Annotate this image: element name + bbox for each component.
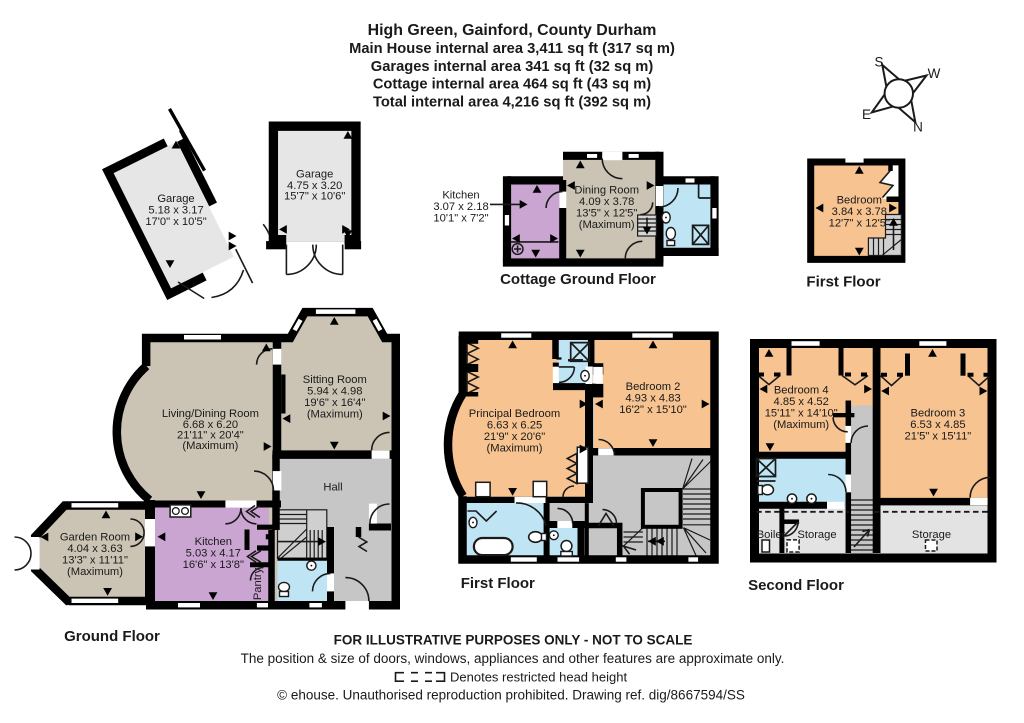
svg-text:5.03 x 4.17: 5.03 x 4.17 [186, 548, 241, 560]
svg-text:Main House internal area 3,411: Main House internal area 3,411 sq ft (31… [349, 41, 675, 57]
svg-text:Garages internal area 341 sq f: Garages internal area 341 sq ft (32 sq m… [371, 59, 654, 75]
svg-text:Pantry: Pantry [252, 567, 264, 600]
svg-text:12'7" x 12'5": 12'7" x 12'5" [829, 218, 890, 230]
svg-text:Bedroom 3: Bedroom 3 [911, 408, 966, 420]
svg-text:16'6" x 13'8": 16'6" x 13'8" [183, 559, 244, 571]
svg-text:15'7" x 10'6": 15'7" x 10'6" [284, 191, 345, 203]
svg-text:Kitchen: Kitchen [442, 190, 479, 202]
svg-text:First Floor: First Floor [461, 575, 535, 592]
svg-text:Garage: Garage [157, 193, 194, 205]
svg-text:Ground Floor: Ground Floor [64, 628, 160, 645]
svg-text:5.18 x 3.17: 5.18 x 3.17 [148, 205, 203, 217]
svg-text:4.93 x 4.83: 4.93 x 4.83 [625, 393, 680, 405]
svg-text:Storage: Storage [797, 529, 836, 541]
svg-text:Total internal area 4,216 sq f: Total internal area 4,216 sq ft (392 sq … [373, 94, 651, 110]
svg-text:N: N [913, 120, 923, 135]
svg-text:(Maximum): (Maximum) [67, 566, 123, 578]
svg-text:(Maximum): (Maximum) [579, 219, 635, 231]
svg-text:3.84 x 3.78: 3.84 x 3.78 [832, 206, 887, 218]
svg-text:19'6" x 16'4": 19'6" x 16'4" [304, 397, 365, 409]
svg-text:21'9" x 20'6": 21'9" x 20'6" [484, 431, 545, 443]
svg-text:17'0" x 10'5": 17'0" x 10'5" [145, 216, 206, 228]
svg-text:E: E [862, 107, 871, 122]
svg-text:3.07 x 2.18: 3.07 x 2.18 [433, 201, 488, 213]
svg-text:Bedroom 4: Bedroom 4 [774, 385, 829, 397]
svg-text:S: S [874, 55, 883, 70]
svg-text:Garage: Garage [296, 169, 333, 181]
svg-text:(Maximum): (Maximum) [182, 440, 238, 452]
svg-text:Bedroom: Bedroom [837, 195, 882, 207]
svg-text:Cottage internal area 464 sq f: Cottage internal area 464 sq ft (43 sq m… [373, 77, 651, 93]
svg-text:Cottage Ground Floor: Cottage Ground Floor [500, 271, 656, 288]
svg-text:High Green, Gainford, County D: High Green, Gainford, County Durham [368, 22, 657, 39]
svg-text:Sitting Room: Sitting Room [303, 374, 367, 386]
svg-text:16'2" x 15'10": 16'2" x 15'10" [619, 404, 687, 416]
svg-text:4.09 x 3.78: 4.09 x 3.78 [579, 196, 634, 208]
svg-text:© ehouse. Unauthorised reprodu: © ehouse. Unauthorised reproduction proh… [277, 688, 745, 703]
svg-text:(Maximum): (Maximum) [307, 409, 363, 421]
svg-text:6.53 x 4.85: 6.53 x 4.85 [910, 419, 965, 431]
svg-text:W: W [928, 66, 941, 81]
svg-text:Bedroom 2: Bedroom 2 [626, 381, 681, 393]
svg-text:The position & size of doors,: The position & size of doors, windows, a… [241, 651, 785, 666]
svg-text:15'11" x 14'10": 15'11" x 14'10" [765, 408, 838, 420]
svg-text:Principal Bedroom: Principal Bedroom [469, 408, 560, 420]
svg-text:13'5" x 12'5": 13'5" x 12'5" [576, 208, 637, 220]
svg-text:Boiler: Boiler [757, 529, 786, 541]
svg-text:4.85 x 4.52: 4.85 x 4.52 [774, 396, 829, 408]
svg-text:10'1" x 7'2": 10'1" x 7'2" [433, 213, 488, 225]
svg-text:21'5" x 15'11": 21'5" x 15'11" [905, 431, 972, 443]
svg-text:(Maximum): (Maximum) [487, 443, 543, 455]
svg-text:Hall: Hall [323, 482, 342, 494]
svg-text:Storage: Storage [912, 529, 951, 541]
svg-text:4.04 x 3.63: 4.04 x 3.63 [67, 543, 122, 555]
svg-text:FOR ILLUSTRATIVE PURPOSES ONLY: FOR ILLUSTRATIVE PURPOSES ONLY - NOT TO … [334, 633, 693, 648]
svg-text:5.94 x 4.98: 5.94 x 4.98 [307, 386, 362, 398]
svg-text:Second Floor: Second Floor [748, 577, 844, 594]
svg-text:Kitchen: Kitchen [195, 536, 232, 548]
svg-text:13'3" x 11'11": 13'3" x 11'11" [62, 555, 128, 567]
svg-text:Dining Room: Dining Room [574, 185, 639, 197]
svg-text:6.63 x 6.25: 6.63 x 6.25 [487, 420, 542, 432]
svg-text:(Maximum): (Maximum) [773, 419, 829, 431]
svg-text:Garden Room: Garden Room [60, 532, 130, 544]
svg-text:Denotes restricted head height: Denotes restricted head height [450, 670, 627, 685]
svg-text:First Floor: First Floor [806, 274, 880, 291]
